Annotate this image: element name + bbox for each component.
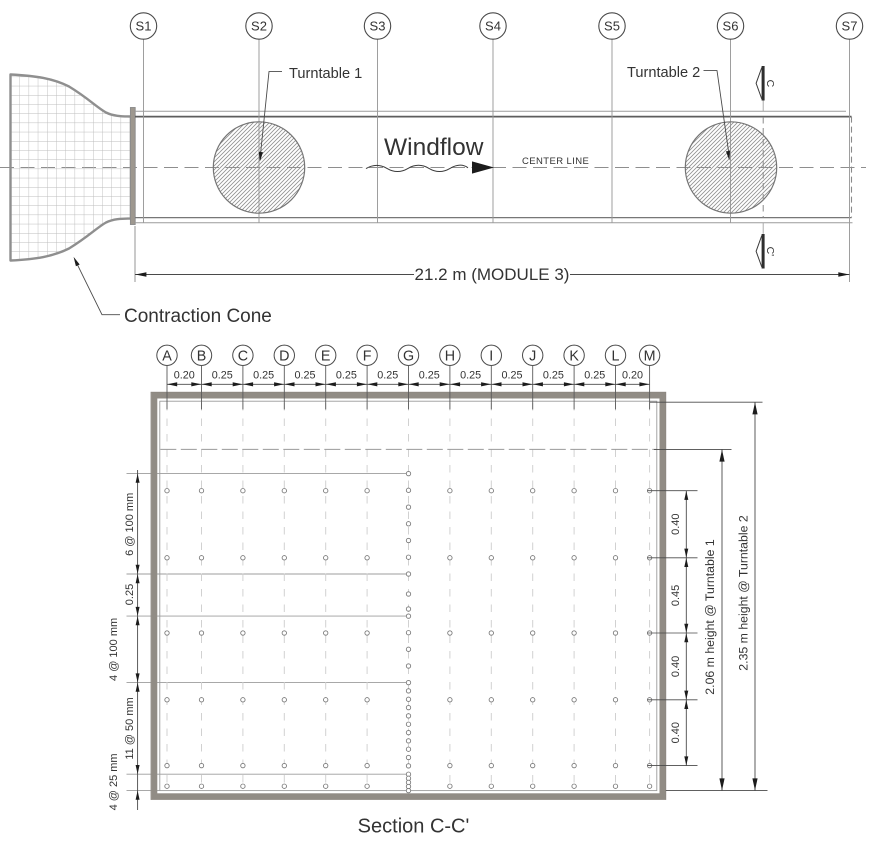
svg-text:S6: S6 [723,19,739,34]
svg-text:A: A [162,348,172,364]
svg-text:Turntable 2: Turntable 2 [627,65,700,81]
svg-text:0.40: 0.40 [670,722,682,743]
svg-text:CENTER LINE: CENTER LINE [522,156,589,167]
svg-text:M: M [644,348,656,364]
svg-text:H: H [445,348,455,364]
svg-text:S1: S1 [136,19,152,34]
svg-text:6 @ 100 mm: 6 @ 100 mm [124,493,136,556]
svg-text:0.25: 0.25 [460,370,481,382]
svg-text:0.25: 0.25 [584,370,605,382]
svg-text:0.25: 0.25 [212,370,233,382]
svg-text:0.20: 0.20 [174,370,195,382]
svg-text:21.2 m (MODULE 3): 21.2 m (MODULE 3) [415,265,570,284]
svg-text:C: C [238,348,248,364]
svg-text:S3: S3 [370,19,386,34]
svg-text:Windflow: Windflow [384,134,484,161]
svg-text:0.25: 0.25 [501,370,522,382]
svg-text:0.20: 0.20 [622,370,643,382]
svg-text:2.06 m height @ Turntable 1: 2.06 m height @ Turntable 1 [703,539,717,695]
svg-text:0.40: 0.40 [670,513,682,534]
svg-text:0.25: 0.25 [419,370,440,382]
svg-text:0.25: 0.25 [543,370,564,382]
svg-text:C': C' [764,247,776,257]
svg-text:G: G [403,348,414,364]
svg-text:4 @ 100 mm: 4 @ 100 mm [108,618,120,681]
svg-text:Turntable 1: Turntable 1 [289,66,362,82]
svg-text:0.25: 0.25 [294,370,315,382]
svg-text:0.40: 0.40 [670,656,682,677]
svg-text:E: E [321,348,331,364]
svg-text:S5: S5 [604,19,620,34]
svg-text:C: C [764,80,776,88]
svg-text:0.45: 0.45 [670,585,682,606]
svg-text:0.25: 0.25 [253,370,274,382]
svg-text:4 @ 25 mm: 4 @ 25 mm [108,753,120,810]
svg-text:0.25: 0.25 [336,370,357,382]
svg-text:D: D [279,348,289,364]
svg-text:K: K [569,348,579,364]
svg-text:S2: S2 [251,19,267,34]
svg-text:0.25: 0.25 [124,584,136,605]
svg-text:F: F [363,348,372,364]
svg-text:11 @ 50 mm: 11 @ 50 mm [124,697,136,759]
svg-text:Contraction Cone: Contraction Cone [124,306,272,327]
svg-text:2.35 m height @ Turntable 2: 2.35 m height @ Turntable 2 [737,515,751,671]
svg-text:B: B [197,348,207,364]
svg-text:S4: S4 [485,19,501,34]
svg-text:S7: S7 [842,19,858,34]
svg-text:J: J [529,348,536,364]
svg-text:0.25: 0.25 [377,370,398,382]
svg-text:Section C-C': Section C-C' [358,815,470,837]
svg-text:I: I [489,348,493,364]
svg-text:L: L [612,348,620,364]
